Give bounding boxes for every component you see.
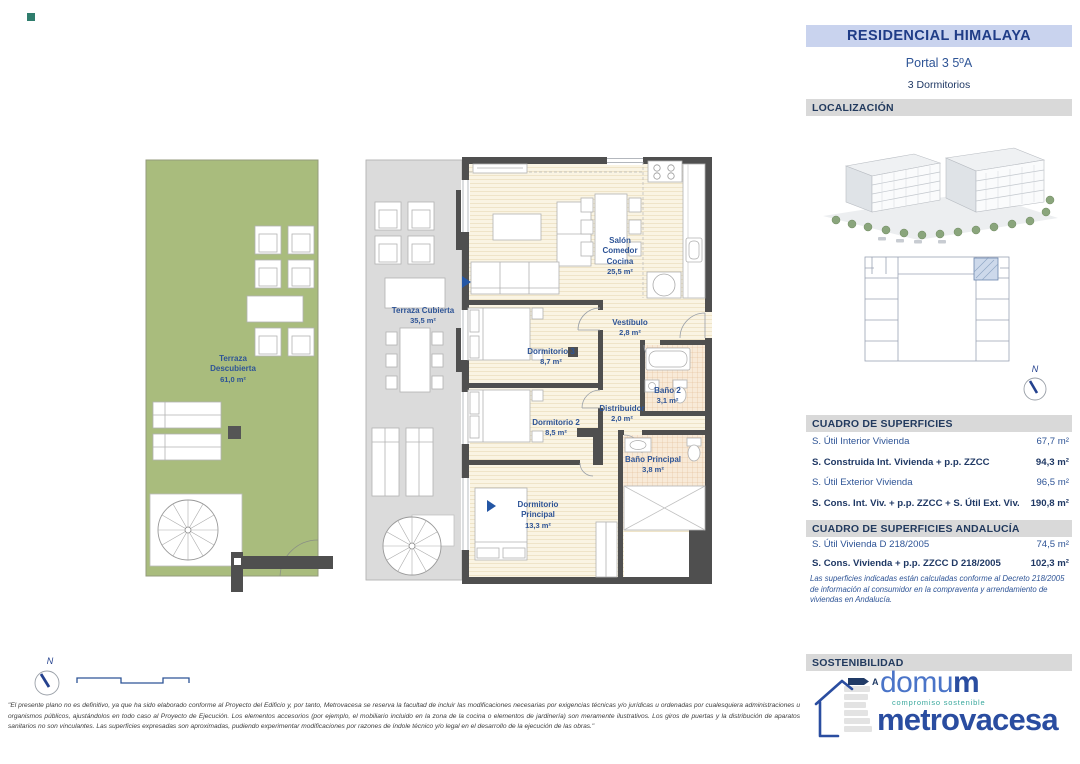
bedrooms-count: 3 Dormitorios	[806, 79, 1072, 91]
room-label-vestibulo: Vestíbulo 2,8 m²	[595, 318, 665, 338]
room-label-terraza-cubierta: Terraza Cubierta 35,5 m²	[378, 306, 468, 326]
metrovacesa-logo: metrovacesa	[877, 702, 1058, 738]
page-title: RESIDENCIAL HIMALAYA	[806, 25, 1072, 47]
surface-value: 190,8 m²	[1031, 498, 1069, 509]
energy-bars	[844, 686, 872, 732]
room-label-bano-principal: Baño Principal 3,8 m²	[617, 455, 689, 475]
room-label-dormitorio2: Dormitorio 2 8,5 m²	[522, 418, 590, 438]
surface-value: 102,3 m²	[1031, 558, 1069, 569]
energy-house-icon: A	[808, 674, 880, 744]
surface-row: S. Útil Interior Vivienda 67,7 m²	[806, 436, 1072, 447]
terraza-cubierta-plan	[362, 156, 468, 592]
room-label-distribuidor: Distribuidor 2,0 m²	[589, 404, 655, 424]
surface-label: S. Útil Interior Vivienda	[812, 436, 909, 447]
surface-value: 94,3 m²	[1036, 457, 1069, 468]
compass-icon: N	[1016, 362, 1056, 408]
terrace-wall-notch	[234, 558, 241, 565]
surface-row: S. Útil Vivienda D 218/2005 74,5 m²	[806, 539, 1072, 550]
page-corner-marker	[27, 13, 35, 21]
section-localizacion: LOCALIZACIÓN	[806, 99, 1072, 116]
room-label-terraza-descubierta: Terraza Descubierta 61,0 m²	[193, 354, 273, 385]
surface-label: S. Útil Exterior Vivienda	[812, 477, 913, 488]
spiral-staircase	[150, 494, 242, 566]
sink	[686, 238, 702, 262]
svg-text:N: N	[47, 656, 54, 666]
surface-row: S. Cons. Vivienda + p.p. ZZCC D 218/2005…	[806, 558, 1072, 569]
surface-row: S. Cons. Int. Viv. + p.p. ZZCC + S. Útil…	[806, 498, 1072, 509]
surface-label: S. Construida Int. Vivienda + p.p. ZZCC	[812, 457, 990, 468]
rear-strip	[624, 532, 689, 577]
surface-row: S. Construida Int. Vivienda + p.p. ZZCC …	[806, 457, 1072, 468]
room-label-salon: Salón Comedor Cocina 25,5 m²	[585, 236, 655, 277]
energy-arrow	[848, 678, 869, 685]
covered-terrace-dining	[386, 328, 443, 392]
location-render-illustration	[818, 140, 1062, 248]
section-andalucia: CUADRO DE SUPERFICIES ANDALUCÍA	[806, 520, 1072, 537]
room-label-dormitorio3: Dormitorio 3 8,7 m²	[518, 347, 584, 367]
room-label-dormitorio-principal: Dormitorio Principal 13,3 m²	[504, 500, 572, 531]
surface-value: 67,7 m²	[1036, 436, 1069, 447]
stove	[648, 161, 682, 182]
legal-disclaimer: "El presente plano no es definitivo, ya …	[8, 701, 800, 733]
surface-value: 74,5 m²	[1036, 539, 1069, 550]
surface-label: S. Cons. Int. Viv. + p.p. ZZCC + S. Útil…	[812, 498, 1020, 509]
plan-compass-icon: N	[28, 650, 72, 700]
key-plan	[862, 254, 1012, 366]
svg-text:N: N	[1032, 364, 1039, 374]
section-superficies: CUADRO DE SUPERFICIES	[806, 415, 1072, 432]
surface-value: 96,5 m²	[1036, 477, 1069, 488]
building-right	[946, 148, 1044, 212]
apartment-floor-plan	[457, 152, 715, 592]
decree-note: Las superficies indicadas están calculad…	[810, 574, 1068, 606]
scale-bar	[75, 668, 195, 692]
portal-subtitle: Portal 3 5ºA	[806, 56, 1072, 70]
terrace-planter	[228, 426, 241, 439]
surface-label: S. Cons. Vivienda + p.p. ZZCC D 218/2005	[812, 558, 1001, 569]
surface-label: S. Útil Vivienda D 218/2005	[812, 539, 929, 550]
domum-logo: domum	[880, 666, 979, 700]
svg-text:A: A	[872, 677, 879, 687]
surface-row: S. Útil Exterior Vivienda 96,5 m²	[806, 477, 1072, 488]
kitchen-table	[653, 274, 675, 296]
